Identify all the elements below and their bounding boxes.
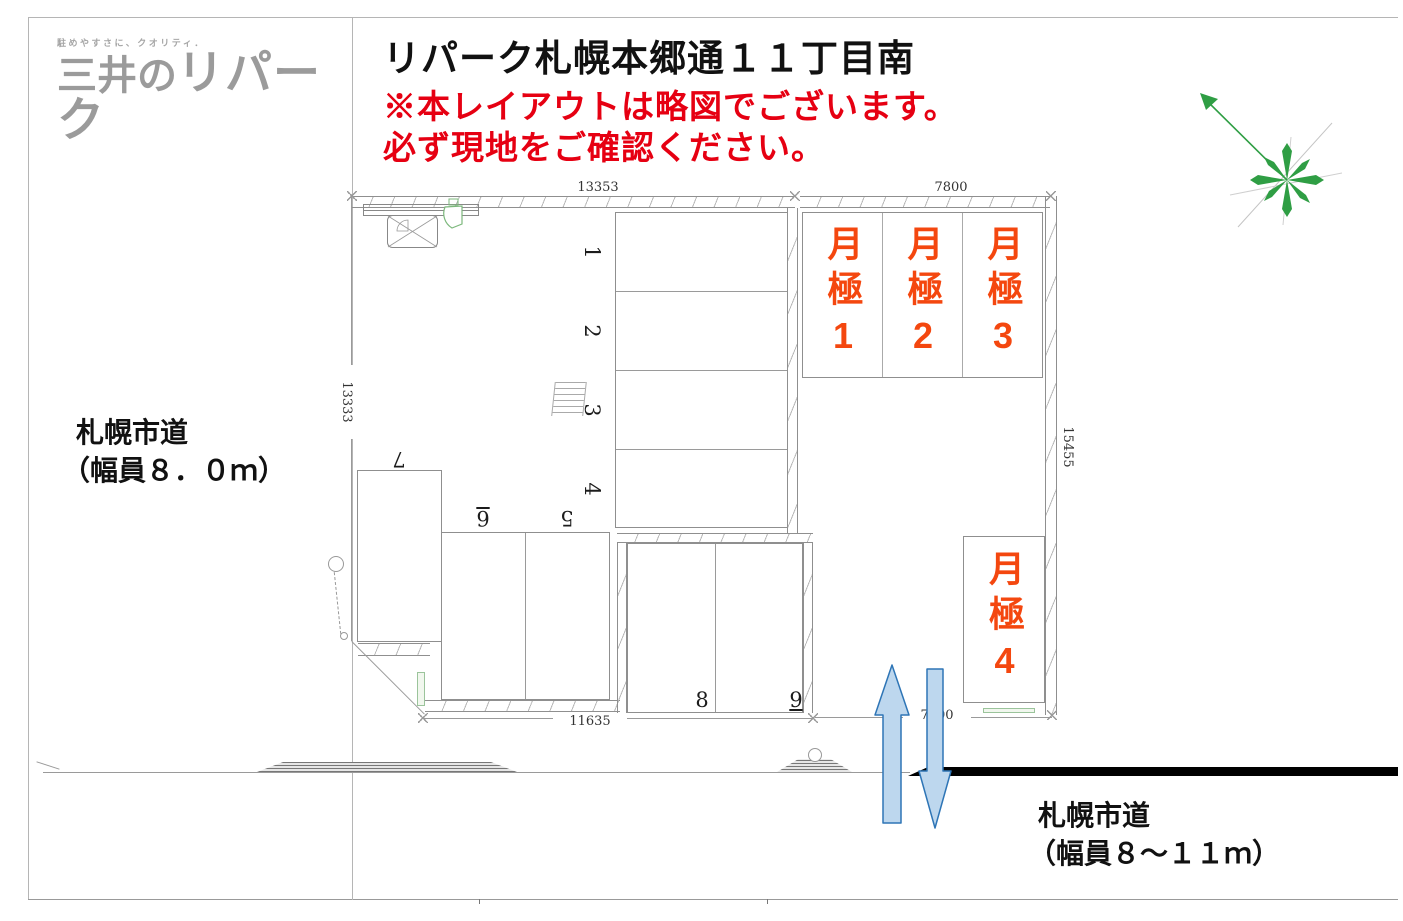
east-wall <box>1045 196 1057 715</box>
down-arrow-icon <box>919 669 951 828</box>
inner-wall <box>787 208 798 533</box>
stall-divider <box>616 291 787 292</box>
frame-left <box>28 17 29 900</box>
stall-divider <box>715 544 716 712</box>
monthly-stall-4: 月極4 <box>964 537 1044 702</box>
wall-89-right <box>803 543 813 713</box>
south-road-label: 札幌市道 （幅員８～１１ｍ） <box>1028 797 1280 873</box>
utility-pole-icon <box>328 556 344 572</box>
west-road-width: （幅員８．０ｍ） <box>62 452 286 490</box>
frame-top <box>28 17 1398 18</box>
south-road-name: 札幌市道 <box>1028 797 1280 835</box>
wheel-stop-bar <box>983 708 1035 713</box>
dim-mark <box>808 713 818 723</box>
stall-number-7: 7 <box>388 448 410 470</box>
road-edge-line <box>43 772 910 773</box>
road-black-edge <box>908 767 1398 776</box>
dim-top-left: 13353 <box>561 180 635 196</box>
dim-west: 13333 <box>338 365 354 439</box>
brand-logo: 駐めやすさに、クオリティ． 三井のリパーク <box>57 36 342 143</box>
monthly-stall-3: 月極3 <box>963 213 1042 377</box>
flag-sign-icon <box>440 198 466 230</box>
utility-pole-wire <box>334 572 342 634</box>
stall-divider <box>616 449 787 450</box>
stall-divider <box>525 533 526 699</box>
dim-mark <box>790 191 800 201</box>
stall-number-8: 8 <box>691 689 713 711</box>
parking-layout-canvas: 駐めやすさに、クオリティ． 三井のリパーク リパーク札幌本郷通１１丁目南 ※本レ… <box>0 0 1403 921</box>
stall-number-9: 9 <box>785 689 807 711</box>
dim-mark <box>418 713 428 723</box>
page-title: リパーク札幌本郷通１１丁目南 <box>383 28 915 82</box>
notice-line-2: 必ず現地をご確認ください。 <box>383 121 825 169</box>
stall-7-box <box>357 470 442 642</box>
manhole-icon <box>808 748 822 762</box>
corner-wall <box>358 643 430 656</box>
dim-mark <box>347 191 357 201</box>
curb-segment <box>257 762 517 772</box>
south-road-width: （幅員８～１１ｍ） <box>1028 835 1280 873</box>
stall-number-1: 1 <box>581 241 603 263</box>
traffic-arrows <box>865 655 960 835</box>
dim-east: 15455 <box>1059 410 1075 484</box>
dim-mark <box>1047 710 1057 720</box>
stall-divider <box>616 370 787 371</box>
north-wall-right <box>800 196 1050 208</box>
stall-number-5: 5 <box>556 507 578 529</box>
west-road-label: 札幌市道 （幅員８．０ｍ） <box>62 414 286 490</box>
drain-grate-icon <box>551 382 587 416</box>
utility-pole-base <box>340 632 348 640</box>
monthly-stall-1: 月極1 <box>803 213 882 377</box>
dim-mark <box>1046 191 1056 201</box>
payment-machine-icon <box>386 214 440 250</box>
monthly-stall-2: 月極2 <box>883 213 962 377</box>
road-edge-hook <box>36 761 59 769</box>
stall-number-6: 6 <box>472 507 494 529</box>
brand-wordmark: 三井のリパーク <box>57 49 342 143</box>
west-road-name: 札幌市道 <box>62 414 286 452</box>
wall-89-left <box>617 543 627 713</box>
wall-89-top <box>617 533 813 543</box>
dim-bottom: 11635 <box>553 714 627 730</box>
up-arrow-icon <box>875 665 909 823</box>
frame-tick <box>479 899 480 904</box>
brand-prefix: 三井の <box>57 54 177 98</box>
stall-number-4: 4 <box>581 478 603 500</box>
compass-north-icon <box>1192 85 1342 230</box>
stall-number-2: 2 <box>581 320 603 342</box>
green-post <box>417 672 425 706</box>
frame-bottom <box>28 899 1398 900</box>
dim-top-right: 7800 <box>917 180 985 196</box>
south-wall-56 <box>425 700 620 712</box>
frame-tick <box>767 899 768 904</box>
